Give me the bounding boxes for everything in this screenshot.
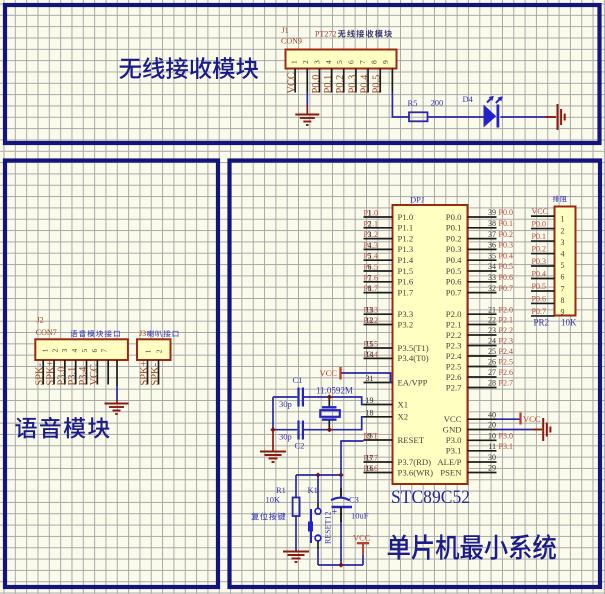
svg-text:29: 29 [488,464,496,473]
svg-text:15: 15 [366,340,374,349]
svg-text:37: 37 [488,230,496,239]
svg-text:P2.7: P2.7 [499,379,513,388]
svg-text:P2.6: P2.6 [446,372,462,382]
svg-text:33: 33 [488,273,496,282]
svg-text:22: 22 [488,316,496,325]
svg-text:J1: J1 [282,26,289,35]
svg-text:30: 30 [488,453,496,462]
svg-text:P3.5(T1): P3.5(T1) [398,343,429,353]
svg-text:SPK+: SPK+ [139,360,150,385]
svg-text:P0.6: P0.6 [532,294,546,303]
svg-text:PSEN: PSEN [440,467,462,477]
svg-text:21: 21 [488,305,496,314]
svg-text:P2.1: P2.1 [446,319,462,329]
svg-text:SPK-: SPK- [150,362,161,385]
svg-text:2: 2 [368,219,372,228]
svg-text:P2.3: P2.3 [446,340,462,350]
svg-text:P0.7: P0.7 [499,284,513,293]
svg-text:P0.2: P0.2 [446,233,462,243]
svg-text:P3.1: P3.1 [446,446,462,456]
svg-text:X2: X2 [398,412,409,422]
svg-text:28: 28 [488,379,496,388]
svg-text:8: 8 [368,284,372,293]
svg-text:14: 14 [366,350,374,359]
svg-text:P0.6: P0.6 [499,273,513,282]
svg-text:32: 32 [488,284,496,293]
svg-text:36: 36 [488,241,496,250]
svg-text:P2.7: P2.7 [446,382,462,392]
svg-text:CON7: CON7 [36,328,57,337]
svg-text:10K: 10K [266,495,282,505]
svg-text:5: 5 [561,261,565,270]
svg-text:C1: C1 [293,375,303,385]
svg-text:P2.4: P2.4 [499,347,513,356]
svg-text:P0.0: P0.0 [499,208,513,217]
svg-text:P0.1: P0.1 [532,232,546,241]
svg-text:P2.4: P2.4 [446,351,462,361]
svg-text:10K: 10K [561,318,577,328]
svg-text:34: 34 [488,262,496,271]
svg-text:P3.0: P3.0 [499,432,513,441]
svg-text:P2.5: P2.5 [446,361,462,371]
svg-text:P3.7(RD): P3.7(RD) [398,457,432,467]
svg-text:P3.1: P3.1 [67,367,78,386]
svg-text:P0.3: P0.3 [499,241,513,250]
svg-text:25: 25 [488,347,496,356]
svg-text:ALE/P: ALE/P [437,457,461,467]
svg-text:6: 6 [347,60,356,64]
svg-text:3: 3 [60,349,69,353]
svg-text:1: 1 [368,209,372,218]
svg-text:P2.1: P2.1 [499,316,513,325]
svg-text:P0.2: P0.2 [532,245,546,254]
svg-text:P0.1: P0.1 [446,223,462,233]
svg-text:35: 35 [488,251,496,260]
svg-text:P3.6(WR): P3.6(WR) [398,467,434,477]
svg-text:4: 4 [368,241,372,250]
svg-text:7: 7 [358,60,367,64]
svg-text:P1.7: P1.7 [398,287,414,297]
svg-text:9: 9 [381,60,390,64]
svg-text:PT272: PT272 [315,30,336,39]
svg-text:7: 7 [561,284,565,293]
svg-text:11.0592M: 11.0592M [316,386,353,396]
svg-text:P0.2: P0.2 [499,230,513,239]
svg-text:P0.4: P0.4 [446,255,462,265]
svg-text:P0.0: P0.0 [532,220,546,229]
svg-text:P0.7: P0.7 [446,287,462,297]
svg-text:P3.4: P3.4 [78,366,89,386]
svg-text:P0.5: P0.5 [446,266,462,276]
svg-text:8: 8 [561,296,565,305]
svg-text:P0.5: P0.5 [372,75,383,94]
svg-text:4: 4 [324,60,333,64]
svg-text:P0.0: P0.0 [446,212,462,222]
svg-text:R1: R1 [276,485,286,495]
svg-text:C3: C3 [349,495,359,505]
svg-text:P0.2: P0.2 [335,75,346,94]
svg-text:P2.2: P2.2 [499,326,513,335]
svg-text:VCC: VCC [89,364,100,385]
svg-text:D4: D4 [463,94,474,104]
svg-text:24: 24 [488,337,496,346]
svg-text:P1.4: P1.4 [398,255,414,265]
svg-text:31: 31 [366,374,374,383]
svg-text:P0.4: P0.4 [360,74,371,94]
svg-text:2: 2 [50,349,59,353]
svg-text:VCC: VCC [532,207,548,216]
svg-text:30p: 30p [279,399,292,409]
svg-text:P1.6: P1.6 [398,277,414,287]
svg-text:6: 6 [368,263,372,272]
svg-text:30p: 30p [279,432,292,442]
svg-text:16: 16 [366,464,374,473]
svg-text:P0.6: P0.6 [446,277,462,287]
svg-text:7: 7 [368,273,372,282]
svg-text:P0.5: P0.5 [499,262,513,271]
svg-text:P0.4: P0.4 [532,270,546,279]
svg-text:P0.3: P0.3 [532,257,546,266]
svg-text:EA/VPP: EA/VPP [398,377,428,387]
svg-text:10: 10 [488,432,496,441]
svg-text:P0.1: P0.1 [323,75,334,94]
svg-text:P0.3: P0.3 [347,75,358,94]
svg-text:P1.2: P1.2 [398,233,414,243]
svg-text:6: 6 [90,349,99,353]
svg-text:J3: J3 [139,329,146,338]
svg-text:VCC: VCC [287,72,298,93]
svg-text:X1: X1 [398,399,409,409]
svg-text:P0.5: P0.5 [532,282,546,291]
svg-text:SPK+: SPK+ [46,360,57,385]
svg-text:5: 5 [335,60,344,64]
svg-text:17: 17 [366,454,374,463]
svg-text:P1.0: P1.0 [398,212,414,222]
svg-text:39: 39 [488,208,496,217]
svg-text:P0.7: P0.7 [532,307,546,316]
svg-text:P1.3: P1.3 [398,244,414,254]
svg-text:SPK-: SPK- [35,362,46,385]
svg-text:19: 19 [366,396,374,405]
svg-text:VCC: VCC [353,533,371,543]
svg-text:P0.3: P0.3 [446,244,462,254]
svg-text:P1.1: P1.1 [398,223,414,233]
svg-text:+: + [332,507,338,518]
svg-text:C2: C2 [295,441,305,451]
svg-text:P0.1: P0.1 [499,219,513,228]
svg-text:10uF: 10uF [351,511,369,521]
svg-text:9: 9 [368,432,372,441]
svg-text:P0.0: P0.0 [311,75,322,94]
svg-text:K1: K1 [308,485,318,495]
svg-text:PR2: PR2 [534,318,550,328]
svg-text:P3.0: P3.0 [56,367,67,386]
svg-text:P2.0: P2.0 [499,305,513,314]
svg-text:VCC: VCC [444,414,462,424]
svg-text:8: 8 [369,60,378,64]
svg-text:4: 4 [70,349,79,353]
svg-text:11: 11 [488,442,496,451]
svg-text:1: 1 [290,60,299,64]
svg-text:40: 40 [488,410,496,419]
svg-text:STC89C52: STC89C52 [391,487,470,508]
svg-text:2: 2 [154,349,163,353]
svg-text:J2: J2 [37,316,44,325]
svg-text:1: 1 [143,349,152,353]
svg-text:DPJ: DPJ [410,195,425,205]
svg-text:3: 3 [368,230,372,239]
svg-text:12: 12 [366,316,374,325]
svg-text:P0.4: P0.4 [499,251,513,260]
svg-text:CON9: CON9 [281,37,302,46]
svg-text:P3.0: P3.0 [446,435,462,445]
svg-text:6: 6 [561,273,565,282]
svg-text:P2.6: P2.6 [499,368,513,377]
svg-text:P2.3: P2.3 [499,337,513,346]
svg-text:RESET: RESET [398,435,425,445]
svg-text:27: 27 [488,368,496,377]
svg-text:P3.1: P3.1 [499,442,513,451]
svg-text:1: 1 [561,215,565,224]
svg-text:5: 5 [368,252,372,261]
svg-text:26: 26 [488,358,496,367]
svg-text:P2.5: P2.5 [499,358,513,367]
svg-text:P1.5: P1.5 [398,266,414,276]
svg-text:5: 5 [80,349,89,353]
svg-text:3: 3 [312,60,321,64]
svg-text:7: 7 [100,349,109,353]
svg-text:38: 38 [488,219,496,228]
svg-text:R5: R5 [408,98,418,108]
svg-text:4: 4 [561,250,565,259]
svg-text:2: 2 [301,60,310,64]
svg-text:18: 18 [366,408,374,417]
svg-text:200: 200 [431,98,444,108]
svg-text:13: 13 [366,306,374,315]
svg-text:GND: GND [443,424,462,434]
svg-text:P3.4(T0): P3.4(T0) [398,353,429,363]
svg-text:23: 23 [488,326,496,335]
svg-text:9: 9 [561,308,565,317]
svg-text:20: 20 [488,421,496,430]
svg-text:P3.3: P3.3 [398,309,414,319]
svg-text:1: 1 [41,349,50,353]
svg-text:3: 3 [561,238,565,247]
svg-text:VCC: VCC [320,368,338,378]
svg-text:VCC: VCC [523,414,541,424]
svg-text:P3.2: P3.2 [398,319,414,329]
svg-text:P2.0: P2.0 [446,309,462,319]
svg-text:2: 2 [561,226,565,235]
svg-text:P2.2: P2.2 [446,330,462,340]
